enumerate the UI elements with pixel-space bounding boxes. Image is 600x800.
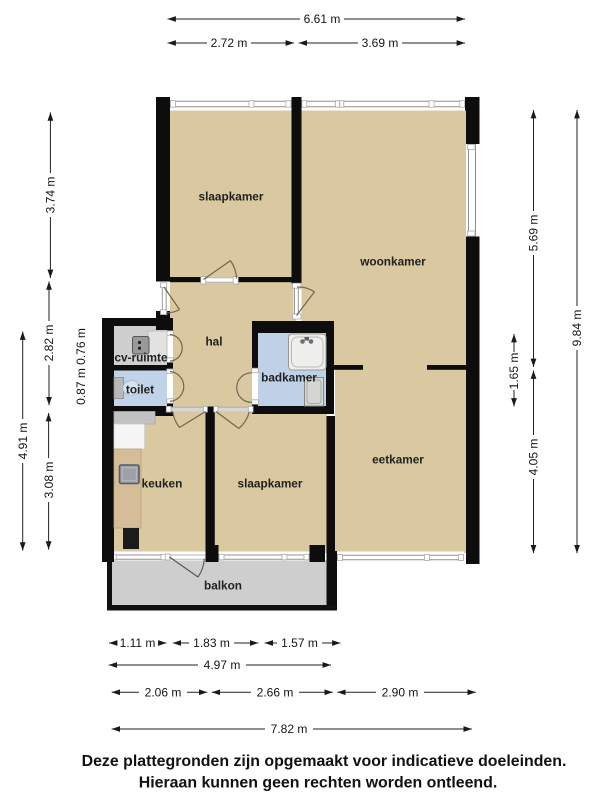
svg-text:toilet: toilet xyxy=(126,382,154,396)
svg-text:2.72 m: 2.72 m xyxy=(211,36,248,50)
svg-text:1.83 m: 1.83 m xyxy=(193,636,230,650)
svg-text:0.87 m: 0.87 m xyxy=(74,368,88,405)
svg-text:keuken: keuken xyxy=(142,476,183,490)
svg-text:2.90 m: 2.90 m xyxy=(382,686,419,700)
svg-text:1.57 m: 1.57 m xyxy=(281,636,318,650)
svg-text:cv-ruimte: cv-ruimte xyxy=(114,350,168,364)
svg-text:balkon: balkon xyxy=(204,578,242,592)
svg-text:6.61 m: 6.61 m xyxy=(304,12,341,26)
svg-text:Hieraan kunnen geen rechten wo: Hieraan kunnen geen rechten worden ontle… xyxy=(139,775,498,792)
svg-text:7.82 m: 7.82 m xyxy=(271,722,308,736)
svg-text:woonkamer: woonkamer xyxy=(359,254,426,268)
svg-text:4.05 m: 4.05 m xyxy=(527,439,541,476)
svg-text:5.69 m: 5.69 m xyxy=(527,215,541,252)
svg-text:hal: hal xyxy=(205,334,222,348)
svg-text:0.76 m: 0.76 m xyxy=(74,328,88,365)
svg-text:badkamer: badkamer xyxy=(261,370,317,384)
svg-text:4.97 m: 4.97 m xyxy=(204,658,241,672)
svg-text:9.84 m: 9.84 m xyxy=(570,310,584,347)
svg-text:3.08 m: 3.08 m xyxy=(42,462,56,499)
svg-text:2.82 m: 2.82 m xyxy=(42,325,56,362)
svg-text:slaapkamer: slaapkamer xyxy=(199,189,264,203)
svg-text:1.11 m: 1.11 m xyxy=(120,636,156,650)
svg-text:2.06 m: 2.06 m xyxy=(145,686,182,700)
svg-text:3.74 m: 3.74 m xyxy=(44,177,58,214)
svg-text:eetkamer: eetkamer xyxy=(372,452,424,466)
svg-text:4.91 m: 4.91 m xyxy=(16,423,30,460)
svg-text:slaapkamer: slaapkamer xyxy=(238,476,303,490)
svg-text:1.65 m: 1.65 m xyxy=(507,353,521,390)
svg-text:3.69 m: 3.69 m xyxy=(362,36,399,50)
svg-text:2.66 m: 2.66 m xyxy=(257,686,294,700)
svg-text:Deze plattegronden zijn opgema: Deze plattegronden zijn opgemaakt voor i… xyxy=(82,753,567,770)
